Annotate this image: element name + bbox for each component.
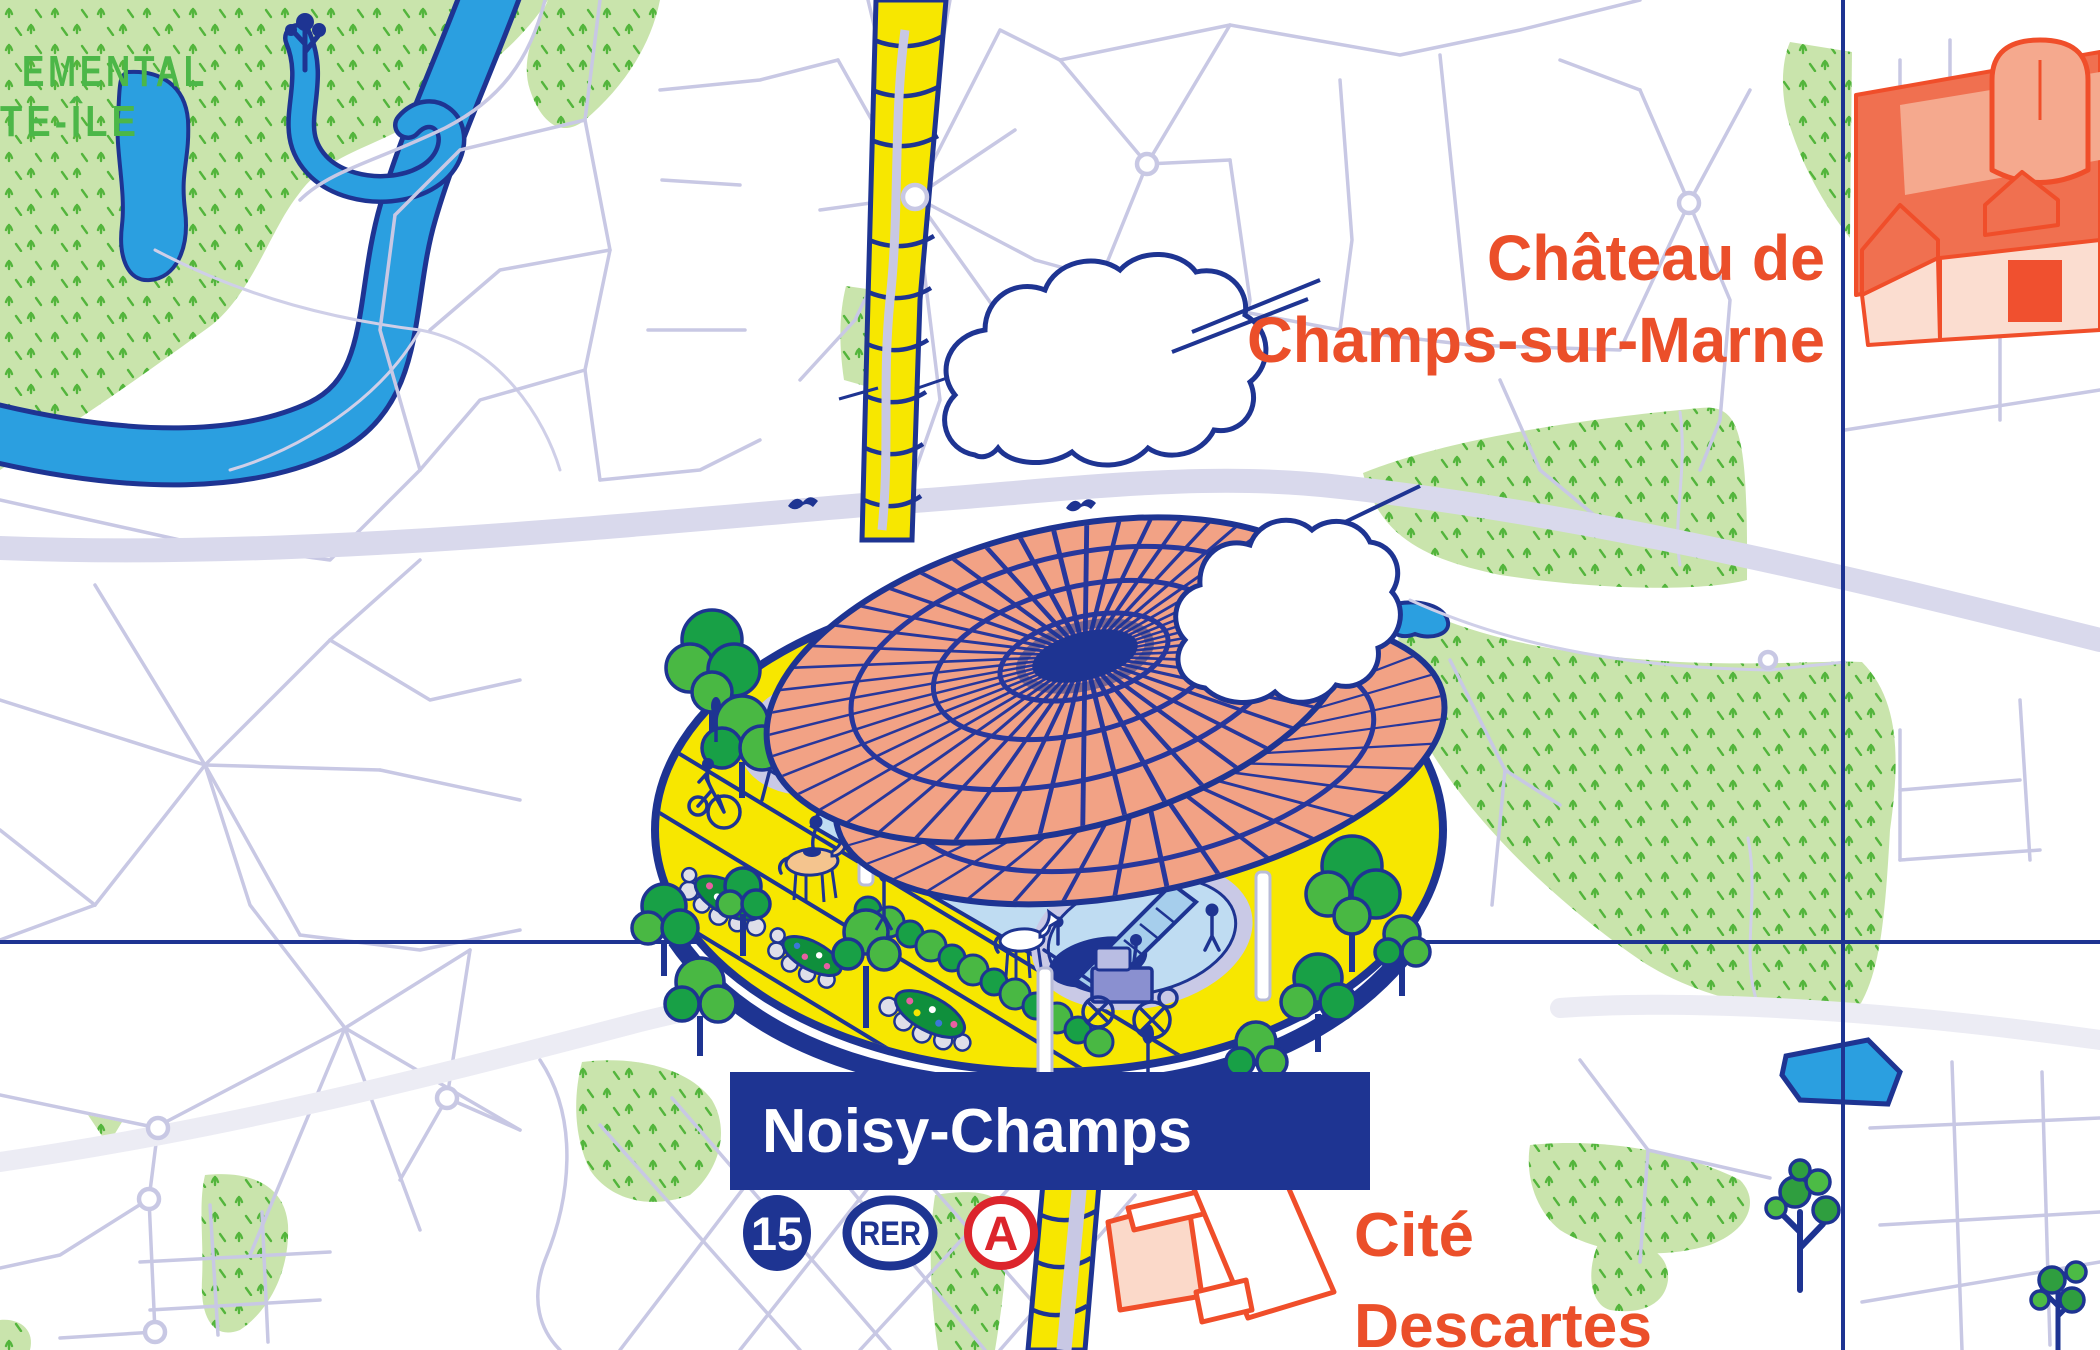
rer-label: RER	[859, 1215, 921, 1253]
station-name: Noisy-Champs	[762, 1097, 1192, 1166]
chateau-label-line2: Champs-sur-Marne	[1247, 304, 1825, 376]
station-banner: Noisy-Champs	[730, 1072, 1370, 1190]
metro-line-15-label: 15	[751, 1207, 803, 1260]
rer-a-badge: A	[968, 1200, 1034, 1266]
park-label-line1: EMENTAL	[22, 47, 208, 96]
cite-label-line2: Descartes	[1354, 1292, 1652, 1350]
park-label-line2: TE-ÎLE	[0, 96, 140, 146]
rer-badge: RER	[847, 1200, 933, 1266]
metro-line-15-badge: 15	[743, 1195, 811, 1271]
map-canvas: EMENTAL TE-ÎLE Château de Champs-sur-Mar…	[0, 0, 2100, 1350]
illustrated-transit-map: EMENTAL TE-ÎLE Château de Champs-sur-Mar…	[0, 0, 2100, 1350]
rer-a-label: A	[984, 1208, 1019, 1261]
cite-label-line1: Cité	[1354, 1201, 1474, 1270]
chateau-label-line1: Château de	[1487, 222, 1825, 294]
